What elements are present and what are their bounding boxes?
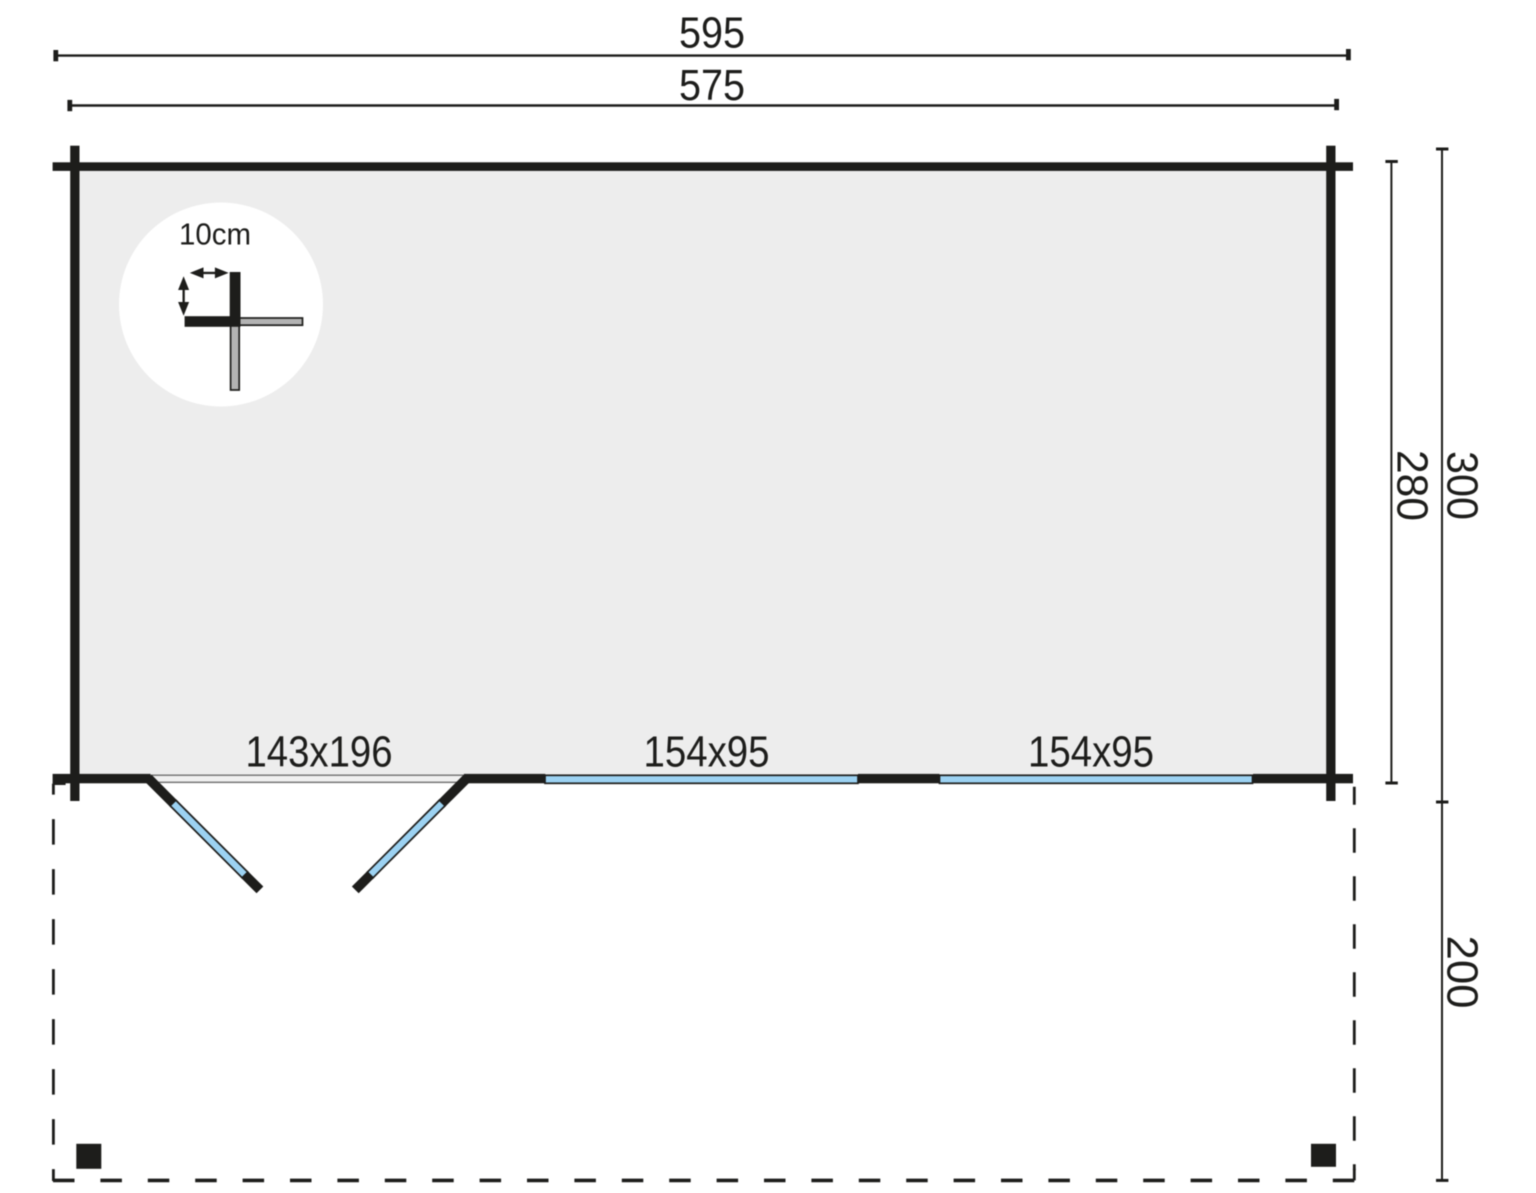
svg-text:10cm: 10cm xyxy=(179,217,251,252)
svg-text:300: 300 xyxy=(1438,451,1487,520)
svg-text:200: 200 xyxy=(1438,936,1487,1009)
svg-text:154x95: 154x95 xyxy=(644,728,770,777)
svg-text:595: 595 xyxy=(679,9,745,58)
svg-text:280: 280 xyxy=(1388,450,1437,521)
svg-text:143x196: 143x196 xyxy=(246,728,393,777)
svg-text:575: 575 xyxy=(679,61,745,110)
svg-text:154x95: 154x95 xyxy=(1028,728,1154,777)
